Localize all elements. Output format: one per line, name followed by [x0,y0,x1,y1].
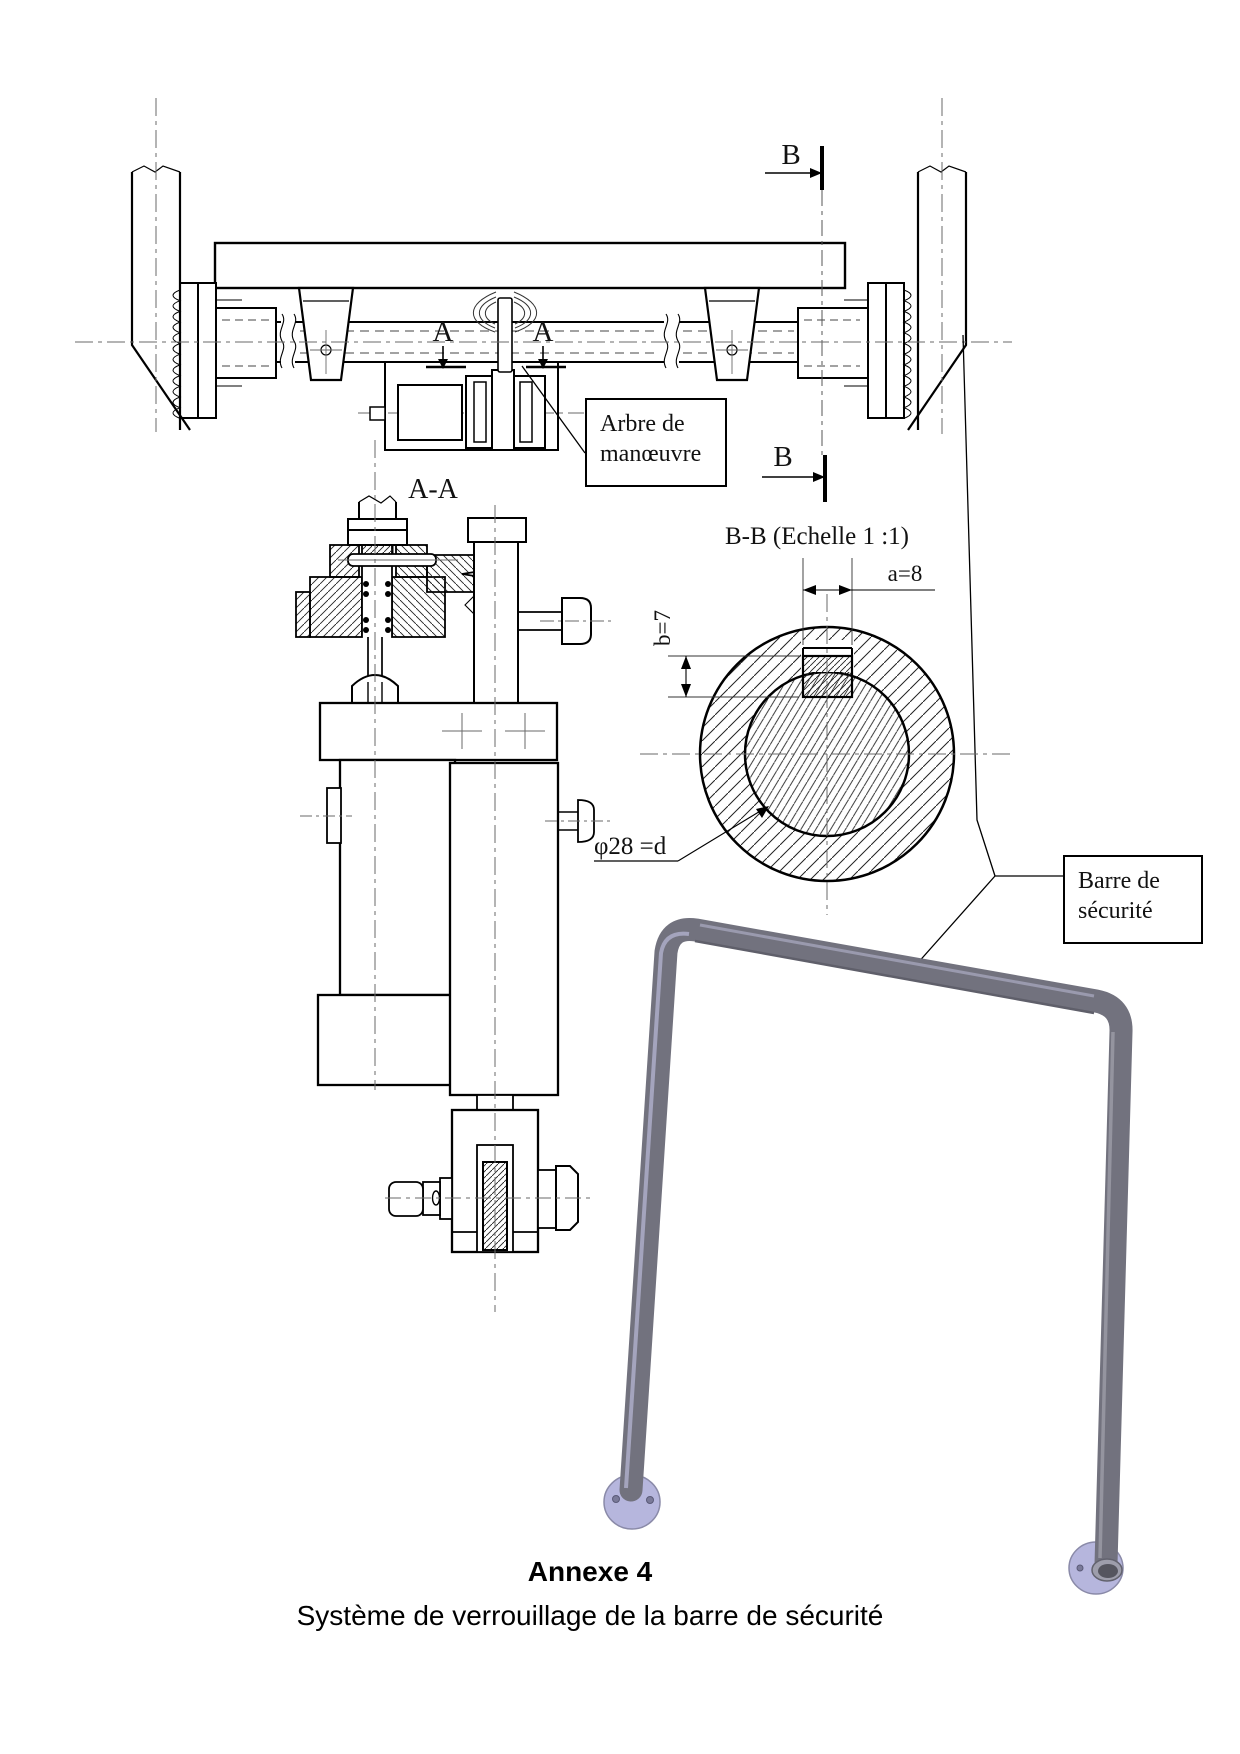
right-post [908,166,966,430]
arbre-de-manoeuvre-callout: Arbre de manœuvre [585,398,727,487]
bb-dim-b-label: b=7 [650,610,675,646]
section-a-letter-left: A [433,316,454,348]
bar-left-foot-hole-2 [647,1497,654,1504]
aa-cylinders [300,760,612,1095]
left-hub [216,308,276,378]
aa-column [465,518,612,703]
barre-callout-line2: sécurité [1078,896,1195,926]
caption-subtitle: Système de verrouillage de la barre de s… [160,1600,1020,1632]
caption: Annexe 4 Système de verrouillage de la b… [160,1556,1020,1632]
section-aa-title: A-A [408,474,459,505]
section-a-marks [426,346,566,369]
bar-tube [631,929,1121,1564]
aa-clevis [385,1095,592,1252]
barre-leader [908,335,1063,974]
section-b-letter-top: B [781,139,800,171]
right-weld-bead [904,290,911,418]
right-hub [798,308,868,378]
barre-de-securite-callout: Barre de sécurité [1063,855,1203,944]
section-b-letter-bottom: B [773,441,792,473]
arbre-callout-line2: manœuvre [600,439,719,469]
arbre-callout-line1: Arbre de [600,409,719,439]
bar-right-foot-hole [1077,1565,1083,1571]
section-bb-title: B-B (Echelle 1 :1) [725,523,909,550]
bar-left-foot-hole-1 [613,1496,620,1503]
caption-title: Annexe 4 [160,1556,1020,1588]
drawing-canvas: A A B B A-A B-B (Echelle 1 :1) a=8 b=7 φ… [0,0,1240,1754]
section-aa-view [296,440,612,1312]
left-bracket [299,288,353,380]
bb-dim-a-label: a=8 [888,561,923,586]
right-bracket [705,288,759,380]
barre-callout-line1: Barre de [1078,866,1195,896]
section-a-letter-right: A [533,316,554,348]
aa-base-plate [320,703,557,760]
bb-dim-d-label: φ28 =d [594,833,667,860]
safety-bar-3d [604,925,1123,1594]
top-beam [215,243,845,288]
technical-drawing-page: A A B B A-A B-B (Echelle 1 :1) a=8 b=7 φ… [0,0,1240,1754]
